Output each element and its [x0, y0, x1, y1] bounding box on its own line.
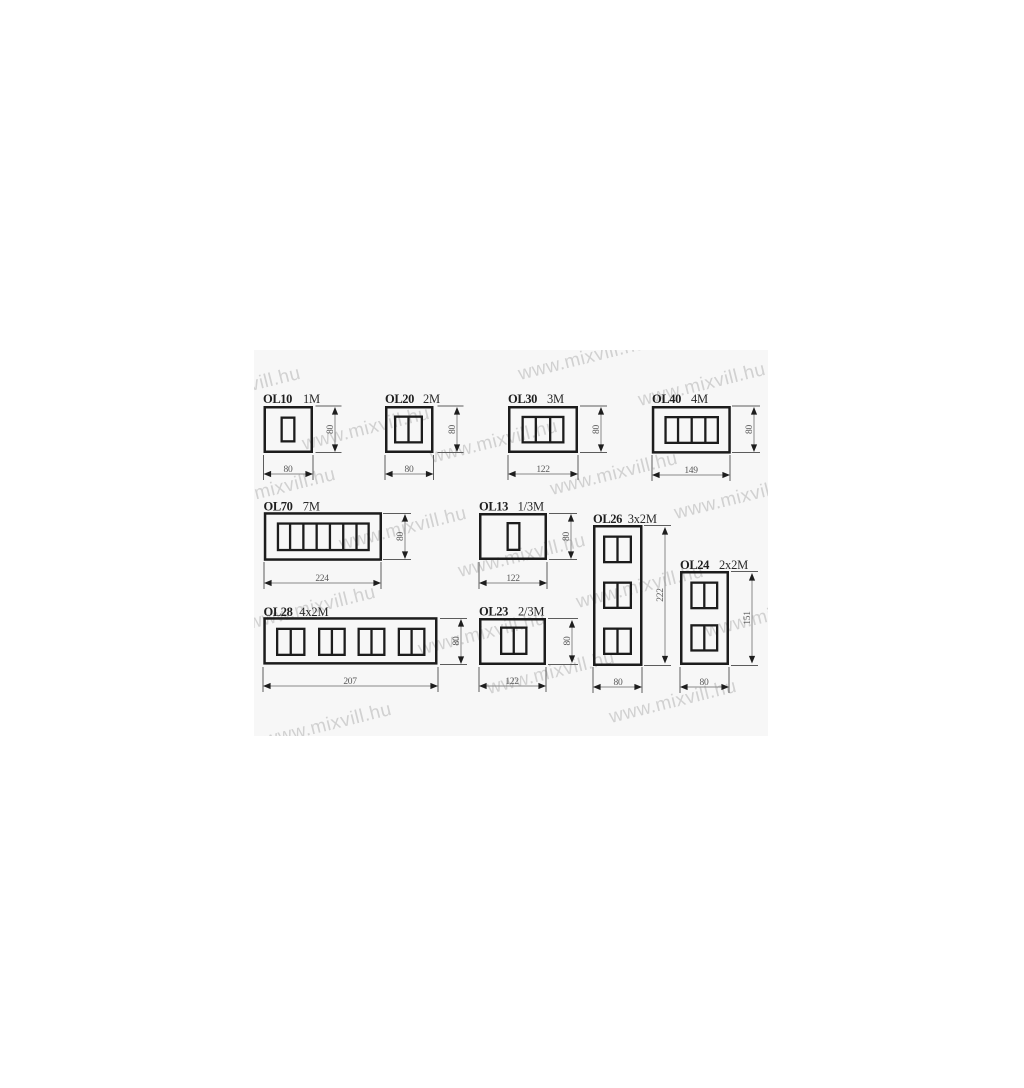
svg-text:4M: 4M	[691, 392, 708, 406]
svg-text:3x2M: 3x2M	[628, 512, 657, 526]
svg-text:122: 122	[506, 574, 520, 584]
svg-text:OL23: OL23	[479, 605, 508, 619]
svg-text:80: 80	[326, 425, 336, 434]
svg-text:2M: 2M	[423, 392, 440, 406]
svg-text:80: 80	[592, 425, 602, 434]
svg-text:80: 80	[562, 532, 572, 541]
svg-text:80: 80	[614, 678, 623, 688]
svg-text:2x2M: 2x2M	[719, 558, 748, 572]
svg-text:4x2M: 4x2M	[299, 605, 328, 619]
svg-text:80: 80	[405, 465, 414, 475]
svg-text:151: 151	[743, 611, 753, 625]
svg-text:1/3M: 1/3M	[518, 500, 544, 514]
svg-text:OL26: OL26	[593, 512, 622, 526]
svg-text:207: 207	[343, 677, 357, 687]
svg-text:222: 222	[656, 588, 666, 602]
svg-text:2/3M: 2/3M	[518, 605, 544, 619]
svg-text:OL28: OL28	[264, 605, 293, 619]
svg-text:1M: 1M	[303, 392, 320, 406]
svg-text:OL10: OL10	[263, 392, 292, 406]
svg-text:149: 149	[684, 466, 698, 476]
svg-text:3M: 3M	[547, 392, 564, 406]
svg-text:OL24: OL24	[680, 558, 710, 572]
svg-text:7M: 7M	[303, 500, 320, 514]
svg-text:80: 80	[396, 532, 406, 541]
svg-text:122: 122	[505, 677, 519, 687]
svg-text:80: 80	[284, 465, 293, 475]
svg-text:OL70: OL70	[264, 500, 293, 514]
svg-text:OL30: OL30	[508, 392, 537, 406]
svg-text:OL20: OL20	[385, 392, 414, 406]
svg-text:80: 80	[448, 425, 458, 434]
svg-text:224: 224	[315, 574, 329, 584]
svg-text:80: 80	[745, 425, 755, 434]
svg-text:80: 80	[452, 636, 462, 645]
svg-text:OL40: OL40	[652, 392, 681, 406]
svg-text:80: 80	[700, 678, 709, 688]
svg-text:80: 80	[563, 636, 573, 645]
svg-text:122: 122	[536, 465, 550, 475]
svg-text:OL13: OL13	[479, 500, 508, 514]
